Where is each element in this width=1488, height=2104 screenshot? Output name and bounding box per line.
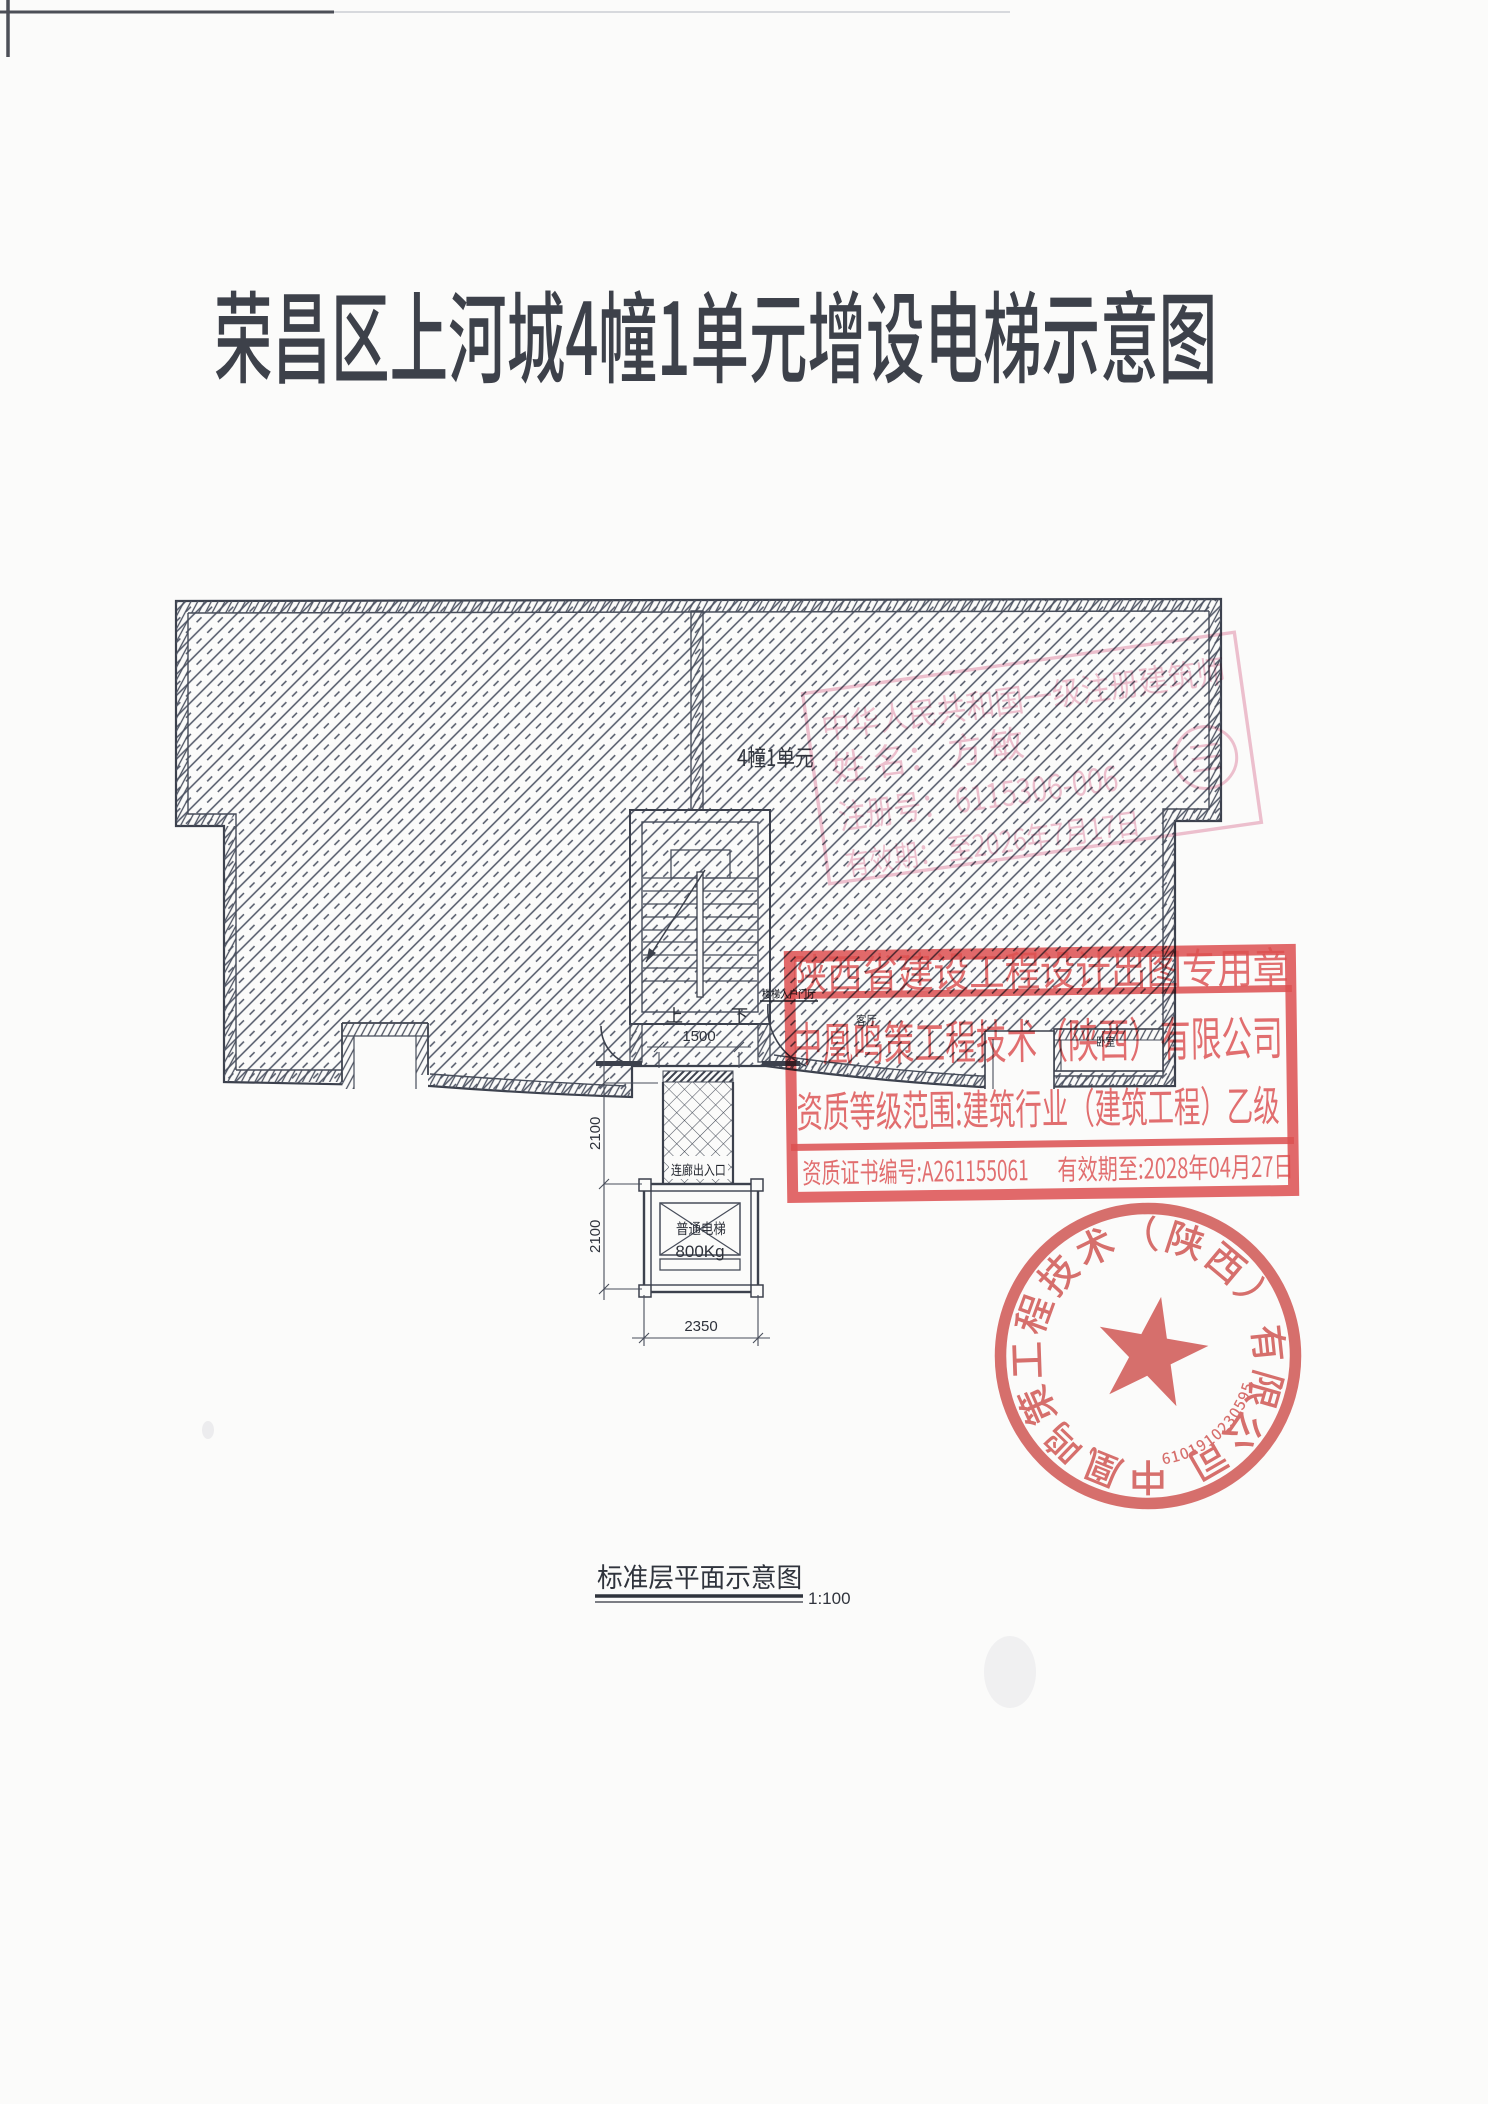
svg-text:1500: 1500 [682,1028,715,1045]
svg-text:800Kg: 800Kg [675,1242,724,1261]
svg-text:2100: 2100 [587,1117,604,1150]
svg-text:2350: 2350 [684,1318,717,1335]
svg-text:2100: 2100 [587,1220,604,1253]
svg-text:1:100: 1:100 [808,1589,851,1608]
